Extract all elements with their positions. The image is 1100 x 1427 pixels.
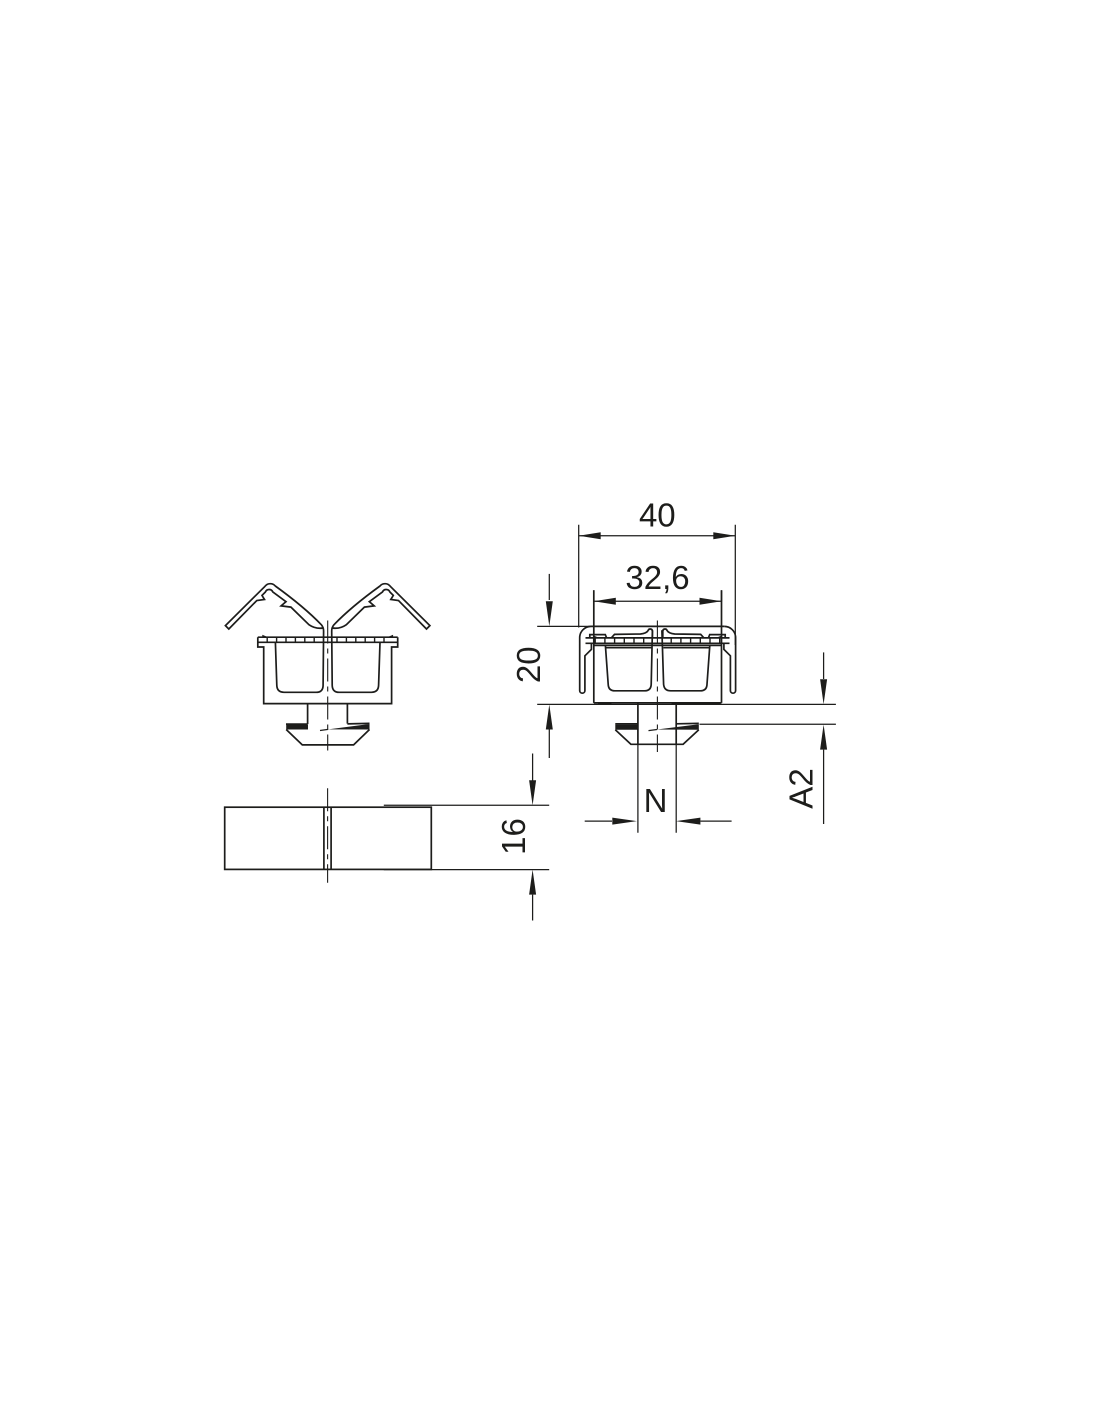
svg-text:32,6: 32,6	[625, 559, 689, 596]
svg-text:16: 16	[495, 818, 532, 855]
svg-text:40: 40	[639, 497, 676, 534]
svg-text:20: 20	[510, 646, 547, 683]
svg-text:A2: A2	[783, 768, 820, 808]
svg-text:N: N	[644, 782, 668, 819]
